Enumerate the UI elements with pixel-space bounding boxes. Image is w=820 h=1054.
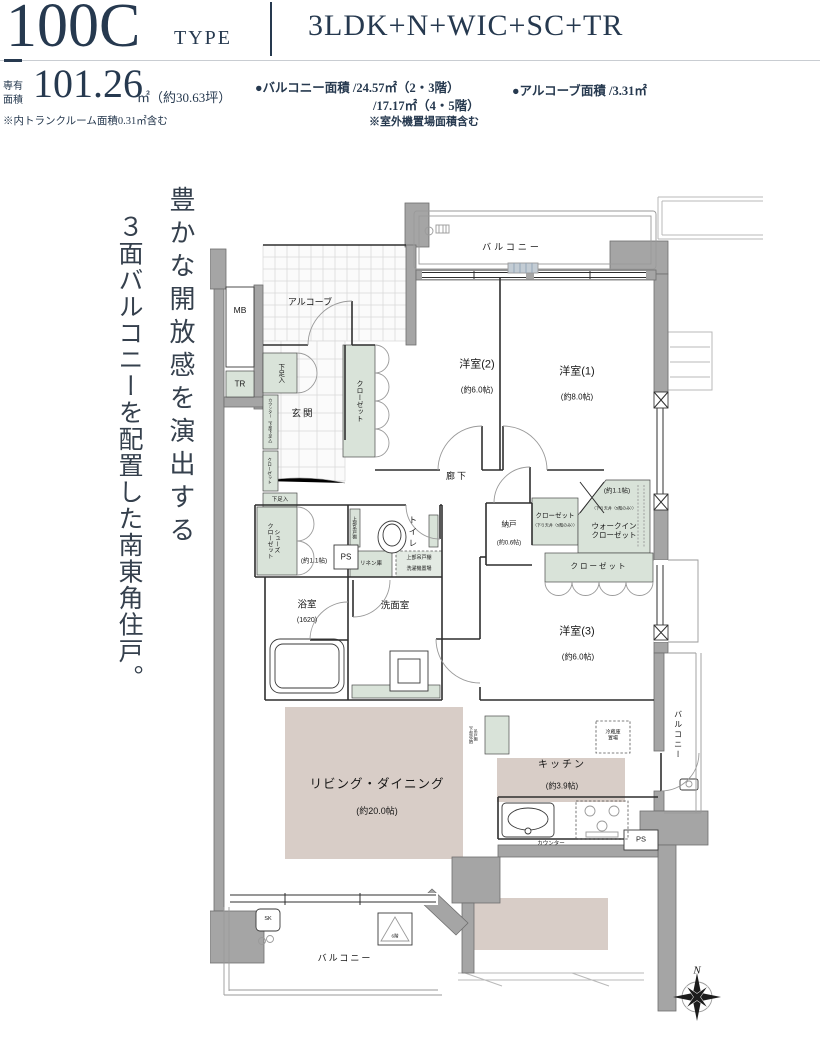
label-fridge-space-l2: 置場 [605,736,620,742]
label-closet-n-note: （下り天井（5階のみ）） [533,524,577,529]
alcove-area: ●アルコーブ面積 /3.31㎡ [512,80,647,99]
label-shoes-closet-size: (約1.1帖) [301,557,327,564]
balcony-area-line2: /17.17㎡（4・5階） [255,98,480,116]
label-upper-cabinet-2: 上部吊戸棚 [406,556,431,562]
label-bedroom3: 洋室(3) [559,626,594,639]
label-bedroom2: 洋室(2) [459,359,494,372]
label-closet-bedroom3: クローゼット [571,563,628,572]
label-bathroom: 浴室 [297,601,316,612]
label-shoes-closet-l2: クローゼット [265,523,272,559]
label-walkin-closet-l2: クローゼット [592,531,637,540]
label-hatch-floor: 6階 [391,933,398,938]
tagline-line2: ３面バルコニーを配置した南東角住戸。 [110,186,146,946]
tagline: 豊かな開放感を演出する ３面バルコニーを配置した南東角住戸。 [94,186,199,946]
label-walkin-closet: ウォークインクローゼット [592,522,637,539]
label-ps-2: PS [636,836,646,845]
label-linen-cabinet: リネン庫 [360,561,382,567]
balcony-area-note: ※室外機置場面積含む [255,115,480,130]
compass-north-label: N [693,965,700,978]
label-living-dining: リビング・ダイニング [309,777,444,791]
area-label-line1: 専有 [3,80,23,94]
area-value: 101.26 [33,64,143,104]
label-hanging-cabinet: 吊戸棚（下部収納） [468,723,477,747]
area-label-line2: 面積 [3,94,23,108]
label-bedroom2-size: (約6.0帖) [461,385,493,394]
label-toilet: トイレ [407,516,417,551]
area-unit: ㎡（約30.63坪） [137,87,231,106]
header-divider [270,2,272,56]
label-wic-size: (約1.1帖) [604,487,630,494]
header-rule-accent [4,59,22,62]
label-bedroom1: 洋室(1) [559,366,594,379]
unit-type-code: 100C [6,0,140,60]
label-counter-note: カウンター（下部下足入） [268,398,273,446]
label-bedroom1-size: (約8.0帖) [561,392,593,401]
label-storeroom: 納戸 [502,521,517,530]
label-closet-genkan: クローゼット [267,458,272,485]
label-bathroom-size: (1620) [297,617,317,625]
area-label: 専有 面積 [3,80,23,107]
unit-type-word: TYPE [174,27,232,50]
label-corridor: 廊下 [446,471,468,481]
label-balcony-bottom: バルコニー [318,953,373,963]
label-shoe-cabinet-1: 下足入 [276,363,283,383]
label-storeroom-size: (約0.6帖) [497,541,521,548]
label-sk: SK [264,916,271,922]
label-washer-space: 洗濯機置場 [406,567,431,573]
balcony-specs: ●バルコニー面積 /24.57㎡（2・3階） /17.17㎡（4・5階） ※室外… [255,80,480,130]
label-shoes-closet: シューズクローゼット [265,523,279,559]
label-living-dining-size: (約20.0帖) [356,806,398,816]
label-wic-note: （下り天井（5階のみ）） [592,507,636,512]
label-shoes-closet-l1: シューズ [272,523,279,559]
label-bedroom3-size: (約6.0帖) [562,652,594,661]
label-upper-cabinet-1: 上部吊戸棚 [352,517,357,540]
label-alcove: アルコーブ [288,297,332,307]
label-hanging-cabinet-l2: （下部収納） [468,723,473,747]
label-washroom: 洗面室 [381,602,410,613]
label-shoe-cabinet-2: 下足入 [272,497,289,503]
balcony-area-line1: ●バルコニー面積 /24.57㎡（2・3階） [255,80,480,98]
label-tr: TR [235,379,246,388]
label-kitchen-size: (約3.9帖) [546,781,578,790]
label-kitchen: キッチン [538,759,586,771]
label-balcony-right: バルコニー [673,710,682,760]
label-counter: カウンター [537,841,565,847]
label-mb: MB [234,306,247,316]
label-fridge-space: 冷蔵庫置場 [605,730,620,742]
area-note: ※内トランクルーム面積0.31㎡含む [3,113,168,128]
label-closet-bedroom2: クローゼット [355,380,363,422]
brochure-page: 100C TYPE 3LDK+N+WIC+SC+TR 専有 面積 101.26 … [0,0,820,1054]
compass-rose [673,973,721,1021]
label-closet-n: クローゼット [536,512,575,519]
label-ps-1: PS [341,552,352,561]
context-outlines [458,197,763,986]
layout-name: 3LDK+N+WIC+SC+TR [308,9,623,43]
floorplan-graphic [210,195,765,1054]
label-balcony-top: バルコニー [482,242,542,252]
label-genkan: 玄関 [291,410,314,421]
tagline-line1: 豊かな開放感を演出する [162,186,199,946]
floor-plan: バルコニー MB アルコーブ TR 下足入 カウンター（下部下足入） クローゼッ… [210,195,765,1054]
